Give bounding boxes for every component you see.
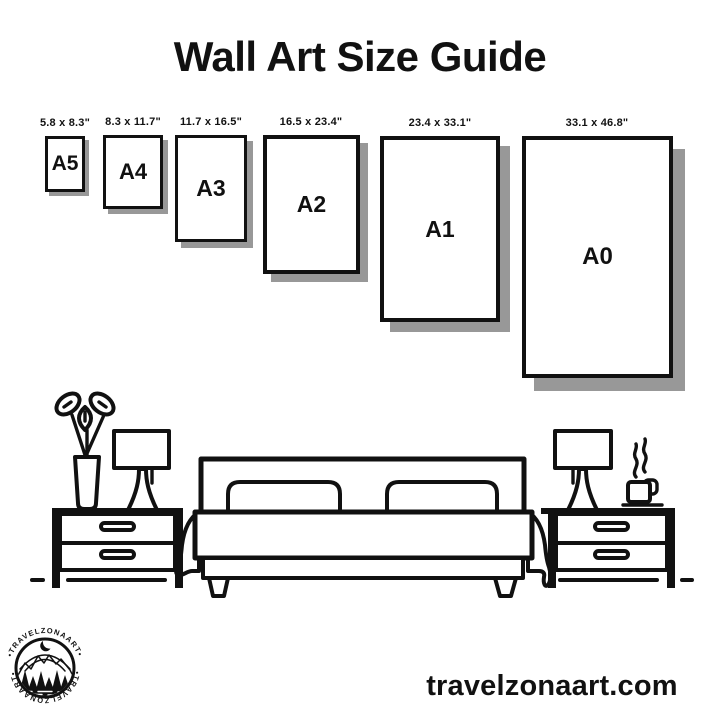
- paper-a4: A4: [103, 135, 163, 209]
- size-guide-poster: Wall Art Size Guide 5.8 x 8.3" 8.3 x 11.…: [0, 0, 720, 720]
- pillow-left: [228, 482, 340, 514]
- drawer-handle: [101, 551, 134, 558]
- table-lamp-right: [555, 431, 611, 510]
- table-lamp-left: [114, 431, 169, 510]
- page-title: Wall Art Size Guide: [0, 33, 720, 81]
- nightstand-right: [541, 508, 675, 588]
- lamp-shade: [114, 431, 169, 468]
- bed-leg-left: [209, 578, 228, 596]
- paper-label: A2: [297, 191, 326, 218]
- drawer-handle: [595, 551, 628, 558]
- paper-a3: A3: [175, 135, 247, 242]
- paper-a5: A5: [45, 136, 85, 192]
- paper-label: A3: [196, 175, 225, 202]
- paper-a2: A2: [263, 135, 360, 274]
- plant-vase: [53, 389, 118, 509]
- cup-body: [628, 482, 650, 502]
- paper-dims-a0: 33.1 x 46.8": [542, 117, 652, 131]
- steam-icon: [634, 439, 646, 477]
- drawer-handle: [101, 523, 134, 530]
- paper-dims-a3: 11.7 x 16.5": [161, 116, 261, 130]
- website-url: travelzonaart.com: [402, 670, 702, 703]
- paper-label: A1: [425, 216, 454, 243]
- double-bed: [176, 459, 550, 596]
- paper-dims-a2: 16.5 x 23.4": [261, 116, 361, 130]
- paper-a0: A0: [522, 136, 673, 378]
- paper-label: A4: [119, 159, 147, 185]
- drawer-handle: [595, 523, 628, 530]
- coffee-cup: [623, 439, 662, 505]
- paper-label: A5: [52, 152, 79, 176]
- bedroom-illustration: [0, 385, 720, 600]
- brand-logo: •TRAVELZONAART• •TRAVELZONAART•: [0, 623, 92, 715]
- vase: [75, 457, 99, 509]
- paper-dims-a1: 23.4 x 33.1": [390, 117, 490, 131]
- bed-base: [203, 558, 523, 578]
- paper-label: A0: [582, 243, 613, 271]
- lamp-shade: [555, 431, 611, 468]
- mattress: [195, 512, 532, 558]
- pillow-right: [387, 482, 497, 514]
- bed-leg-right: [495, 578, 516, 596]
- nightstand-left: [52, 508, 183, 588]
- paper-a1: A1: [380, 136, 500, 322]
